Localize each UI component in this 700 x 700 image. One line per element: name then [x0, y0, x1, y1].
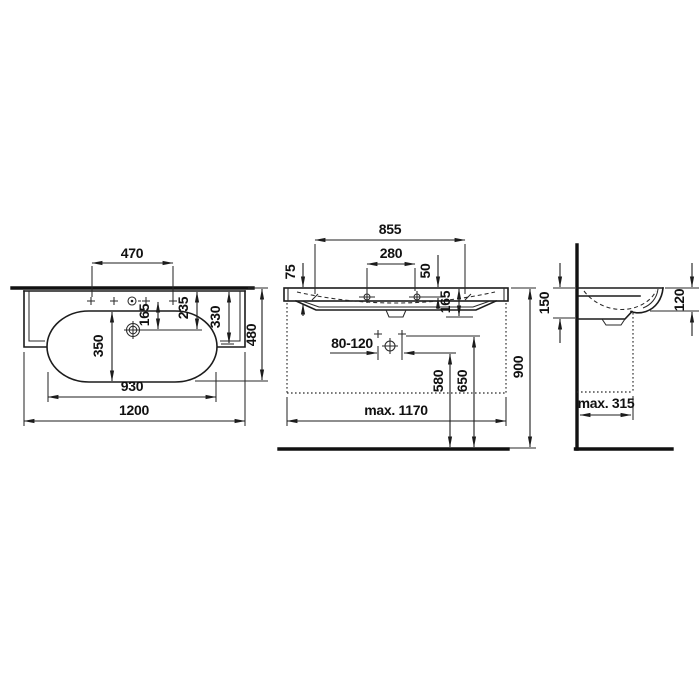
dim-120: 120: [650, 263, 699, 336]
basin-left-edge: [24, 291, 47, 347]
dim-label-900: 900: [510, 355, 526, 378]
dim-label-165-top: 165: [136, 303, 152, 326]
dim-label-330: 330: [207, 305, 223, 328]
dimension-drawing-canvas: 470 165 235 330 350 480 930: [0, 0, 700, 700]
dim-label-650: 650: [454, 369, 470, 392]
basin-inner-left: [29, 291, 45, 341]
dim-label-1200: 1200: [119, 402, 149, 418]
dim-label-855: 855: [379, 221, 402, 237]
top-view: 470 165 235 330 350 480 930: [12, 245, 268, 426]
front-view: 855 280 75 50 165: [279, 221, 536, 449]
drain-connection-group: 80-120: [330, 330, 456, 360]
trap-clearance-outline: [577, 313, 633, 392]
dim-max-1170: max. 1170: [287, 397, 506, 426]
dim-280: 280: [367, 245, 415, 291]
dim-580: 580: [430, 354, 450, 447]
dim-label-80-120: 80-120: [331, 335, 373, 351]
dim-label-max-315: max. 315: [578, 395, 635, 411]
dim-label-470: 470: [121, 245, 144, 261]
dim-label-50: 50: [417, 263, 433, 278]
technical-drawing: 470 165 235 330 350 480 930: [0, 0, 700, 700]
dim-label-150: 150: [536, 291, 552, 314]
dim-label-165-front: 165: [437, 290, 453, 313]
dim-label-350: 350: [90, 334, 106, 357]
dim-label-235: 235: [175, 296, 191, 319]
dim-label-480: 480: [243, 323, 259, 346]
dim-label-580: 580: [430, 369, 446, 392]
sink-front-profile-inner: [302, 301, 490, 307]
dim-150: 150: [536, 263, 575, 343]
sink-side-profile: [577, 288, 663, 325]
faucet-center-dot: [131, 300, 134, 303]
basin-inner-right: [220, 291, 240, 341]
sink-front-profile: [296, 301, 496, 310]
dim-label-930: 930: [121, 378, 144, 394]
dim-label-280: 280: [380, 245, 403, 261]
dim-label-75: 75: [282, 264, 298, 279]
side-view: 150 120 max. 315: [536, 245, 699, 449]
dim-max-315: max. 315: [578, 395, 635, 415]
dim-900: 900: [507, 288, 536, 448]
dim-label-120: 120: [671, 288, 687, 311]
drain-fitting: [386, 310, 406, 317]
bowl-oval: [47, 311, 217, 382]
dim-label-max-1170: max. 1170: [364, 402, 428, 418]
